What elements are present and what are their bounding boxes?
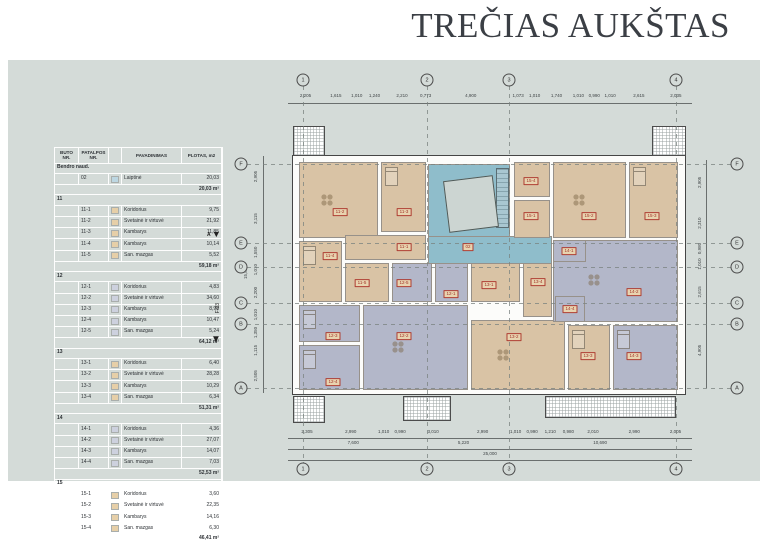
room-color-swatch bbox=[111, 437, 119, 444]
grid-bubble-left-F: F bbox=[235, 158, 248, 171]
table-row: 11-5San. mazgas5,52 bbox=[55, 251, 222, 262]
room-color-swatch bbox=[111, 372, 119, 379]
table-row: 15-3Kambarys14,16 bbox=[55, 512, 222, 523]
balcony-2 bbox=[293, 396, 325, 423]
table-row: 11-1Koridorius9,75 bbox=[55, 206, 222, 217]
table-cell bbox=[109, 316, 122, 326]
bottom-dimension-line-2 bbox=[288, 449, 692, 450]
table-row: 13-2Svetainė ir virtuvė28,28 bbox=[55, 370, 222, 381]
table-cell: Kambarys bbox=[122, 512, 182, 522]
balcony-4 bbox=[545, 396, 676, 418]
table-cell: 6,40 bbox=[182, 359, 222, 369]
grid-bubble-left-C: C bbox=[235, 297, 248, 310]
table-cell bbox=[109, 305, 122, 315]
table-cell: San. mazgas bbox=[122, 251, 182, 261]
room-label-13-3: 13-3 bbox=[580, 352, 595, 360]
grid-bubble-left-D: D bbox=[235, 261, 248, 274]
drawing-panel: BUTO NR.PATALPOS NR.PAVADINIMASPLOTAS, m… bbox=[8, 60, 760, 481]
bed-pillow-line bbox=[304, 351, 315, 355]
table-cell: 5,52 bbox=[182, 251, 222, 261]
table-cell bbox=[109, 501, 122, 511]
table-cell: 4,36 bbox=[182, 424, 222, 434]
table-group-name: Bendro naud. bbox=[55, 164, 222, 173]
table-cell: San. mazgas bbox=[122, 523, 182, 533]
table-group-name: 14 bbox=[55, 414, 222, 423]
table-cell bbox=[55, 447, 79, 457]
table-cell: Kambarys bbox=[122, 447, 182, 457]
table-cell bbox=[109, 436, 122, 446]
table-cell: 02 bbox=[79, 174, 109, 184]
room-label-11-1: 11-1 bbox=[397, 243, 412, 251]
table-cell: 15-3 bbox=[79, 512, 109, 522]
table-cell bbox=[109, 174, 122, 184]
table-cell: 4,83 bbox=[182, 282, 222, 292]
table-cell bbox=[55, 228, 79, 238]
table-cell bbox=[55, 523, 79, 533]
balcony-0 bbox=[293, 126, 325, 156]
table-row: 14-2Svetainė ir virtuvė27,07 bbox=[55, 436, 222, 447]
bed-furniture-icon bbox=[617, 330, 630, 349]
section-arrow-down-icon: ▼ bbox=[212, 229, 221, 239]
table-furniture-icon bbox=[392, 341, 404, 353]
table-cell: Kambarys bbox=[122, 381, 182, 391]
table-cell: Koridorius bbox=[122, 206, 182, 216]
room-label-02b: 02 bbox=[462, 243, 473, 251]
room-color-swatch bbox=[111, 503, 119, 510]
room-label-14-4: 14-4 bbox=[562, 305, 577, 313]
table-cell: 14-2 bbox=[79, 436, 109, 446]
table-row: 15-2Svetainė ir virtuvė22,35 bbox=[55, 501, 222, 512]
table-group-name: 12 bbox=[55, 272, 222, 281]
grid-line-row-D bbox=[247, 267, 731, 268]
table-cell: Svetainė ir virtuvė bbox=[122, 370, 182, 380]
room-label-12-4: 12-4 bbox=[325, 378, 340, 386]
grid-bubble-bottom-2: 2 bbox=[421, 463, 434, 476]
room-color-swatch bbox=[111, 318, 119, 325]
table-cell: 12-4 bbox=[79, 316, 109, 326]
table-row: 12 bbox=[55, 272, 222, 282]
table-cell: PATALPOS NR. bbox=[79, 148, 109, 163]
top-dimension-line bbox=[288, 103, 692, 104]
table-cell: Koridorius bbox=[122, 424, 182, 434]
table-cell: 13-1 bbox=[79, 359, 109, 369]
room-color-swatch bbox=[111, 492, 119, 499]
table-cell bbox=[109, 217, 122, 227]
left-dimension-line bbox=[263, 156, 264, 393]
bed-pillow-line bbox=[304, 247, 315, 251]
room-label-12-3: 12-3 bbox=[325, 332, 340, 340]
table-cell: Koridorius bbox=[122, 490, 182, 500]
table-cell: 15-4 bbox=[79, 523, 109, 533]
table-subtotal: 46,41 m² bbox=[55, 535, 222, 543]
bottom-overall-dimension: 25,000 bbox=[288, 452, 692, 459]
bed-pillow-line bbox=[304, 311, 315, 315]
grid-line-col-2 bbox=[427, 86, 428, 463]
room-label-13-1: 13-1 bbox=[481, 281, 496, 289]
table-cell: 10,14 bbox=[182, 239, 222, 249]
table-cell: PLOTAS, m2 bbox=[182, 148, 222, 163]
table-cell: 28,28 bbox=[182, 370, 222, 380]
table-cell bbox=[109, 393, 122, 403]
grid-bubble-left-A: A bbox=[235, 382, 248, 395]
table-cell: 11-4 bbox=[79, 239, 109, 249]
bed-furniture-icon bbox=[303, 246, 316, 265]
room-color-swatch bbox=[111, 219, 119, 226]
table-row: 11-2Svetainė ir virtuvė21,92 bbox=[55, 217, 222, 228]
grid-bubble-right-B: B bbox=[731, 318, 744, 331]
table-furniture-icon bbox=[573, 194, 585, 206]
table-cell bbox=[55, 436, 79, 446]
table-cell: 14,07 bbox=[182, 447, 222, 457]
table-cell: 10,29 bbox=[182, 381, 222, 391]
section-arrow-icon: ▼ bbox=[211, 334, 221, 345]
table-row: 13-1Koridorius6,40 bbox=[55, 359, 222, 370]
room-color-swatch bbox=[111, 525, 119, 532]
grid-line-row-C bbox=[247, 303, 731, 304]
table-cell: Svetainė ir virtuvė bbox=[122, 217, 182, 227]
table-cell bbox=[109, 424, 122, 434]
table-cell bbox=[55, 305, 79, 315]
grid-bubble-right-D: D bbox=[731, 261, 744, 274]
table-cell: Svetainė ir virtuvė bbox=[122, 294, 182, 304]
grid-bubble-right-F: F bbox=[731, 158, 744, 171]
section-marker-a: A ▼ bbox=[207, 229, 221, 239]
grid-bubble-bottom-1: 1 bbox=[297, 463, 310, 476]
table-cell: 3,60 bbox=[182, 490, 222, 500]
table-cell bbox=[109, 228, 122, 238]
room-color-swatch bbox=[111, 361, 119, 368]
table-cell bbox=[55, 282, 79, 292]
table-row: 02Laiptinė20,03 bbox=[55, 174, 222, 185]
table-row: 12-2Svetainė ir virtuvė34,60 bbox=[55, 294, 222, 305]
grid-bubble-right-A: A bbox=[731, 382, 744, 395]
table-cell bbox=[55, 239, 79, 249]
room-color-swatch bbox=[111, 448, 119, 455]
table-row: 15-1Koridorius3,60 bbox=[55, 490, 222, 501]
room-label-11-3: 11-3 bbox=[397, 208, 412, 216]
grid-bubble-top-1: 1 bbox=[297, 74, 310, 87]
room-color-swatch bbox=[111, 394, 119, 401]
table-furniture-icon bbox=[588, 274, 600, 286]
table-cell: 7,03 bbox=[182, 458, 222, 468]
area-table: BUTO NR.PATALPOS NR.PAVADINIMASPLOTAS, m… bbox=[54, 147, 223, 543]
table-cell: 22,35 bbox=[182, 501, 222, 511]
room-label-12-5: 12-5 bbox=[396, 279, 411, 287]
table-subtotal: 64,12 m² bbox=[55, 338, 222, 347]
table-cell bbox=[55, 393, 79, 403]
top-dimensions: 2,2051,6151,0101,2402,2100,7734,9001,073… bbox=[288, 94, 692, 101]
table-cell: Kambarys bbox=[122, 239, 182, 249]
grid-bubble-top-2: 2 bbox=[421, 74, 434, 87]
bed-pillow-line bbox=[634, 168, 645, 172]
room-color-swatch bbox=[111, 306, 119, 313]
grid-line-col-3 bbox=[509, 86, 510, 463]
table-cell: Kambarys bbox=[122, 228, 182, 238]
grid-line-row-F bbox=[247, 164, 731, 165]
table-cell: 27,07 bbox=[182, 436, 222, 446]
table-cell: BUTO NR. bbox=[55, 148, 79, 163]
section-marker-f03: F-03 bbox=[215, 303, 221, 313]
right-dimension-line bbox=[706, 160, 707, 388]
table-subtotal: 51,31 m² bbox=[55, 404, 222, 413]
table-cell bbox=[109, 512, 122, 522]
table-row: 14-4San. mazgas7,03 bbox=[55, 458, 222, 469]
grid-bubble-bottom-4: 4 bbox=[670, 463, 683, 476]
grid-line-col-4 bbox=[676, 86, 677, 463]
left-dimensions: 2,9053,1151,5501,0102,2001,0101,3501,115… bbox=[252, 156, 260, 393]
room-color-swatch bbox=[111, 460, 119, 467]
table-cell: Svetainė ir virtuvė bbox=[122, 436, 182, 446]
room-label-13-2: 13-2 bbox=[506, 333, 521, 341]
table-row: 14 bbox=[55, 414, 222, 424]
bed-furniture-icon bbox=[385, 167, 398, 186]
grid-line-row-A bbox=[247, 388, 731, 389]
table-cell bbox=[109, 251, 122, 261]
table-cell: San. mazgas bbox=[122, 393, 182, 403]
table-cell bbox=[109, 370, 122, 380]
table-cell: Kambarys bbox=[122, 305, 182, 315]
right-dimensions: 2,9052,3100,9801,0102,6154,905 bbox=[696, 160, 704, 388]
table-cell: 15-2 bbox=[79, 501, 109, 511]
grid-line-row-B bbox=[247, 324, 731, 325]
table-cell: 12-5 bbox=[79, 327, 109, 337]
table-cell bbox=[55, 174, 79, 184]
elevator-shaft bbox=[443, 175, 499, 233]
table-furniture-icon bbox=[321, 194, 333, 206]
table-cell bbox=[109, 206, 122, 216]
table-row: 15-4San. mazgas6,30 bbox=[55, 523, 222, 534]
grid-bubble-left-B: B bbox=[235, 318, 248, 331]
bed-furniture-icon bbox=[633, 167, 646, 186]
room-label-15-2: 15-2 bbox=[581, 212, 596, 220]
balcony-1 bbox=[652, 126, 686, 156]
table-row: 51,31 m² bbox=[55, 404, 222, 414]
grid-bubble-right-C: C bbox=[731, 297, 744, 310]
table-cell bbox=[55, 370, 79, 380]
table-cell: 11-2 bbox=[79, 217, 109, 227]
table-row: 13 bbox=[55, 349, 222, 359]
room-label-15-4: 15-4 bbox=[523, 177, 538, 185]
table-row: Bendro naud. bbox=[55, 164, 222, 174]
table-cell: 6,34 bbox=[182, 393, 222, 403]
floor-plan-sheet: TREČIAS AUKŠTAS BUTO NR.PATALPOS NR.PAVA… bbox=[0, 0, 768, 543]
table-cell bbox=[109, 490, 122, 500]
room-label-14-3: 14-3 bbox=[626, 352, 641, 360]
table-cell: 10,47 bbox=[182, 316, 222, 326]
table-row: 11 bbox=[55, 195, 222, 205]
table-cell: 9,75 bbox=[182, 206, 222, 216]
table-cell: 12-1 bbox=[79, 282, 109, 292]
table-cell bbox=[109, 458, 122, 468]
room-color-swatch bbox=[111, 426, 119, 433]
table-subtotal: 52,53 m² bbox=[55, 469, 222, 478]
table-cell bbox=[109, 447, 122, 457]
table-group-name: 13 bbox=[55, 349, 222, 358]
table-cell: 20,03 bbox=[182, 174, 222, 184]
table-cell: 13-3 bbox=[79, 381, 109, 391]
table-group-name: 11 bbox=[55, 195, 222, 204]
table-cell bbox=[55, 217, 79, 227]
table-cell bbox=[109, 381, 122, 391]
table-cell bbox=[55, 359, 79, 369]
table-cell: Laiptinė bbox=[122, 174, 182, 184]
room-label-12-1: 12-1 bbox=[443, 290, 458, 298]
table-cell bbox=[55, 316, 79, 326]
grid-line-row-E bbox=[247, 243, 731, 244]
bottom-dimensions-2: 7,6005,22010,690 bbox=[288, 441, 692, 448]
table-cell: 15-1 bbox=[79, 490, 109, 500]
room-02b bbox=[428, 236, 552, 264]
bottom-dimension-line-1 bbox=[288, 438, 692, 439]
table-cell bbox=[109, 523, 122, 533]
table-row: 11-4Kambarys10,14 bbox=[55, 239, 222, 250]
table-cell bbox=[109, 148, 122, 163]
table-cell: 14-4 bbox=[79, 458, 109, 468]
room-color-swatch bbox=[111, 329, 119, 336]
table-row: 20,03 m² bbox=[55, 185, 222, 195]
table-cell bbox=[55, 490, 79, 500]
grid-bubble-top-3: 3 bbox=[503, 74, 516, 87]
table-cell: 11-3 bbox=[79, 228, 109, 238]
table-cell: 6,30 bbox=[182, 523, 222, 533]
table-cell bbox=[55, 206, 79, 216]
table-cell bbox=[109, 294, 122, 304]
table-cell: 14,16 bbox=[182, 512, 222, 522]
table-cell: 11-5 bbox=[79, 251, 109, 261]
grid-bubble-right-E: E bbox=[731, 237, 744, 250]
table-cell bbox=[109, 282, 122, 292]
room-13-2 bbox=[471, 320, 565, 390]
table-row: 14-3Kambarys14,07 bbox=[55, 447, 222, 458]
table-cell: 13-2 bbox=[79, 370, 109, 380]
room-15-2 bbox=[553, 162, 626, 238]
table-row: 52,53 m² bbox=[55, 469, 222, 479]
room-color-swatch bbox=[111, 241, 119, 248]
bed-furniture-icon bbox=[572, 330, 585, 349]
room-label-11-4: 11-4 bbox=[323, 252, 338, 260]
room-label-11-5: 11-5 bbox=[355, 279, 370, 287]
table-row: 11-3Kambarys11,85 bbox=[55, 228, 222, 239]
table-cell: 14-3 bbox=[79, 447, 109, 457]
table-cell: 12-2 bbox=[79, 294, 109, 304]
table-row: 12-3Kambarys8,98 bbox=[55, 305, 222, 316]
room-11-2 bbox=[299, 162, 378, 238]
table-cell: 14-1 bbox=[79, 424, 109, 434]
table-cell: Svetainė ir virtuvė bbox=[122, 501, 182, 511]
room-label-13-4: 13-4 bbox=[530, 278, 545, 286]
room-12-2 bbox=[363, 305, 468, 390]
table-cell bbox=[55, 501, 79, 511]
room-label-11-2: 11-2 bbox=[333, 208, 348, 216]
grid-line-col-1 bbox=[303, 86, 304, 463]
room-color-swatch bbox=[111, 383, 119, 390]
room-color-swatch bbox=[111, 514, 119, 521]
table-cell bbox=[109, 239, 122, 249]
grid-bubble-top-4: 4 bbox=[670, 74, 683, 87]
table-subtotal: 59,18 m² bbox=[55, 262, 222, 271]
grid-bubble-bottom-3: 3 bbox=[503, 463, 516, 476]
grid-bubble-left-E: E bbox=[235, 237, 248, 250]
room-color-swatch bbox=[111, 176, 119, 183]
table-row: 64,12 m² bbox=[55, 338, 222, 348]
bed-pillow-line bbox=[618, 331, 629, 335]
table-row: 15 bbox=[55, 480, 222, 490]
room-color-swatch bbox=[111, 252, 119, 259]
table-cell: 11-1 bbox=[79, 206, 109, 216]
room-color-swatch bbox=[111, 230, 119, 237]
table-cell: Koridorius bbox=[122, 359, 182, 369]
table-row: 12-4Kambarys10,47 bbox=[55, 316, 222, 327]
table-cell: San. mazgas bbox=[122, 327, 182, 337]
room-11-1 bbox=[345, 235, 426, 260]
bed-pillow-line bbox=[386, 168, 397, 172]
table-row: BUTO NR.PATALPOS NR.PAVADINIMASPLOTAS, m… bbox=[55, 148, 222, 164]
table-cell: San. mazgas bbox=[122, 458, 182, 468]
table-subtotal: 20,03 m² bbox=[55, 185, 222, 194]
table-cell: Kambarys bbox=[122, 316, 182, 326]
room-color-swatch bbox=[111, 207, 119, 214]
table-row: 12-1Koridorius4,83 bbox=[55, 282, 222, 293]
room-label-14-2: 14-2 bbox=[626, 288, 641, 296]
room-color-swatch bbox=[111, 295, 119, 302]
bed-furniture-icon bbox=[303, 310, 316, 329]
bed-pillow-line bbox=[573, 331, 584, 335]
room-label-12-2: 12-2 bbox=[396, 332, 411, 340]
table-cell bbox=[55, 458, 79, 468]
table-row: 59,18 m² bbox=[55, 262, 222, 272]
table-row: 13-4San. mazgas6,34 bbox=[55, 393, 222, 404]
table-row: 13-3Kambarys10,29 bbox=[55, 381, 222, 392]
room-label-15-1: 15-1 bbox=[523, 212, 538, 220]
bed-furniture-icon bbox=[303, 350, 316, 369]
table-cell bbox=[109, 359, 122, 369]
table-cell: 13-4 bbox=[79, 393, 109, 403]
table-cell: PAVADINIMAS bbox=[122, 148, 182, 163]
room-color-swatch bbox=[111, 284, 119, 291]
table-cell: Koridorius bbox=[122, 282, 182, 292]
room-label-15-3: 15-3 bbox=[644, 212, 659, 220]
table-cell bbox=[55, 327, 79, 337]
bottom-dimensions: 2,3052,9901,0100,9903,0102,9901,0100,990… bbox=[288, 430, 692, 437]
table-row: 14-1Koridorius4,36 bbox=[55, 424, 222, 435]
bottom-dimension-line-3 bbox=[288, 460, 692, 461]
table-cell bbox=[109, 327, 122, 337]
table-furniture-icon bbox=[497, 349, 509, 361]
table-cell: 21,92 bbox=[182, 217, 222, 227]
room-label-14-1: 14-1 bbox=[561, 247, 576, 255]
table-row: 12-5San. mazgas5,24 bbox=[55, 327, 222, 338]
table-cell: 12-3 bbox=[79, 305, 109, 315]
table-cell bbox=[55, 381, 79, 391]
table-cell bbox=[55, 251, 79, 261]
room-13-4 bbox=[523, 263, 552, 317]
table-group-name: 15 bbox=[55, 480, 222, 489]
table-cell bbox=[55, 424, 79, 434]
table-cell bbox=[55, 512, 79, 522]
table-cell bbox=[55, 294, 79, 304]
table-row: 46,41 m² bbox=[55, 535, 222, 543]
